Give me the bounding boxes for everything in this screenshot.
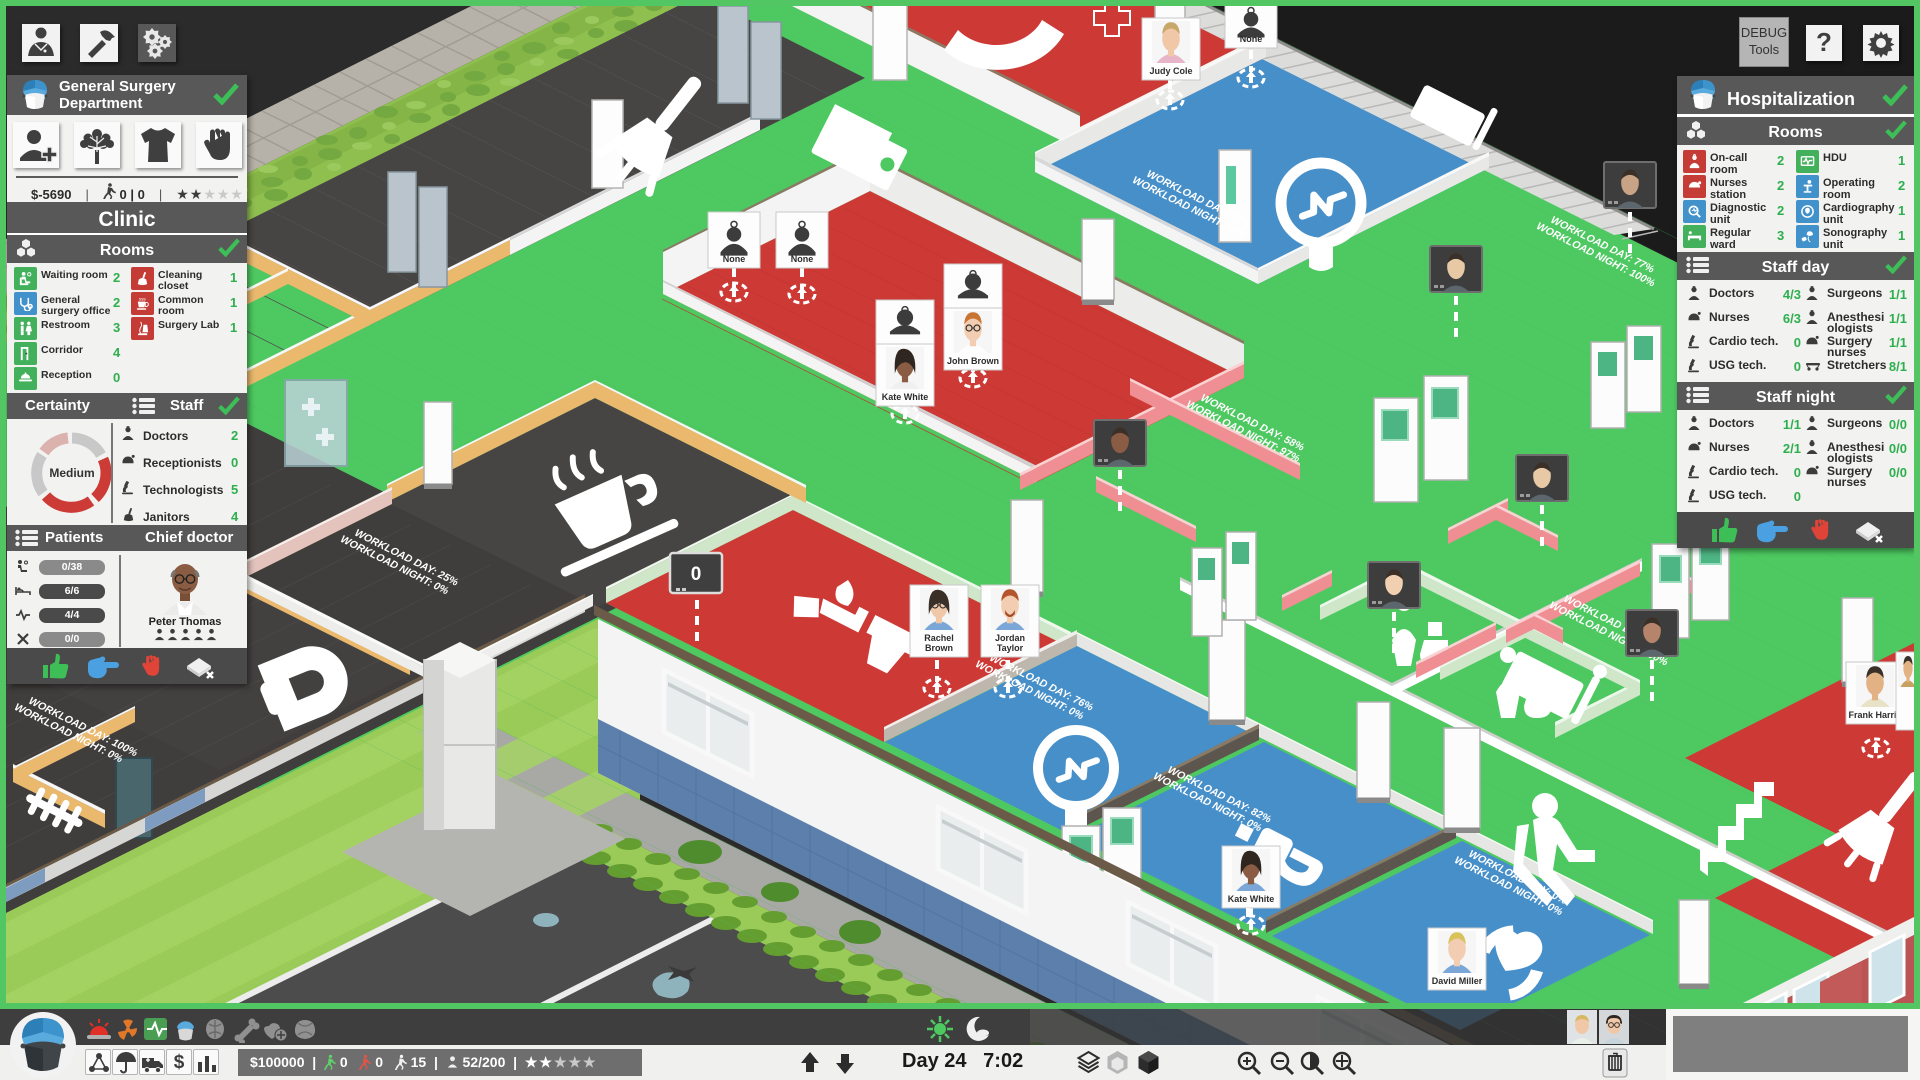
svg-text:John Brown: John Brown [947,356,999,366]
svg-text:Taylor: Taylor [997,643,1024,653]
svg-text:0: 0 [691,564,702,585]
svg-text:David Miller: David Miller [1432,976,1483,986]
svg-text:Kate White: Kate White [1228,894,1275,904]
svg-text:None: None [1240,34,1263,44]
svg-text:Judy Cole: Judy Cole [1149,66,1192,76]
svg-text:sss: sss [139,297,147,302]
svg-text:Frank Harris: Frank Harris [1848,710,1901,720]
svg-text:Kate White: Kate White [882,392,929,402]
svg-text:Medium: Medium [49,466,94,480]
svg-text:Jordan: Jordan [995,633,1025,643]
svg-text:Brown: Brown [925,643,953,653]
svg-text:None: None [723,254,746,264]
svg-text:Rachel: Rachel [924,633,954,643]
svg-text:None: None [791,254,814,264]
